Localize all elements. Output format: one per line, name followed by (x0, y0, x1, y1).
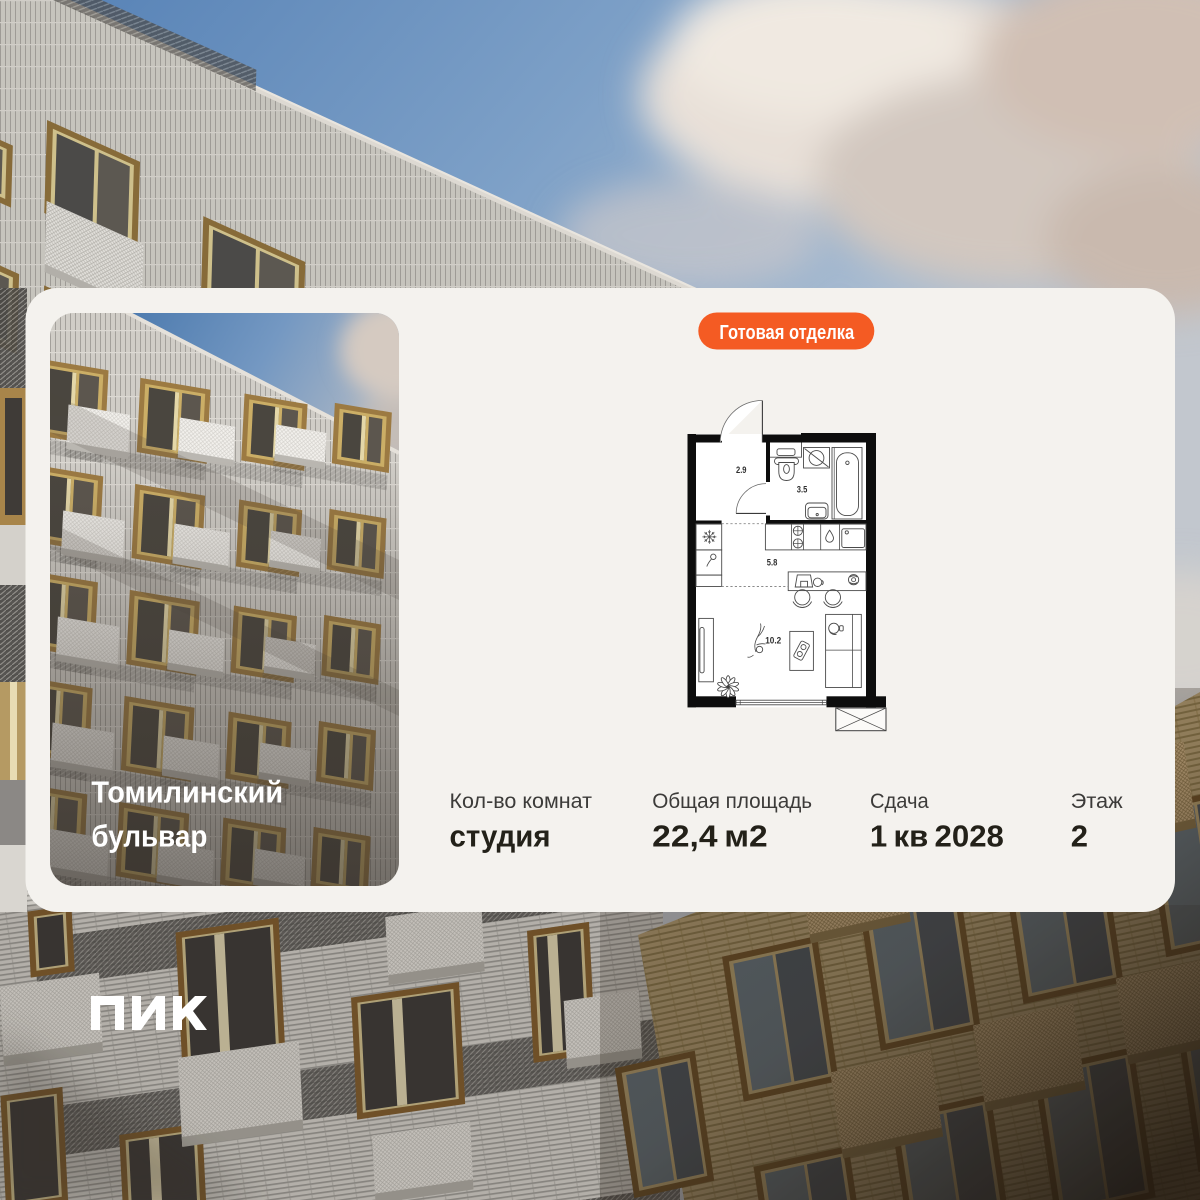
svg-text:2: 2 (1071, 818, 1088, 853)
svg-text:Общая площадь: Общая площадь (652, 790, 812, 813)
svg-text:5.8: 5.8 (767, 557, 778, 568)
svg-text:2.9: 2.9 (736, 465, 747, 476)
svg-text:3.5: 3.5 (797, 485, 808, 496)
svg-text:10.2: 10.2 (765, 636, 781, 647)
svg-text:студия: студия (450, 818, 551, 853)
svg-text:Готовая отделка: Готовая отделка (719, 322, 855, 344)
svg-text:Этаж: Этаж (1071, 790, 1123, 813)
svg-text:Сдача: Сдача (870, 790, 929, 813)
svg-text:Кол-во комнат: Кол-во комнат (450, 790, 593, 813)
svg-text:бульвар: бульвар (91, 819, 207, 854)
svg-text:Томилинский: Томилинский (91, 774, 283, 809)
svg-text:22,4 м2: 22,4 м2 (652, 818, 768, 853)
svg-text:1 кв 2028: 1 кв 2028 (870, 818, 1004, 853)
